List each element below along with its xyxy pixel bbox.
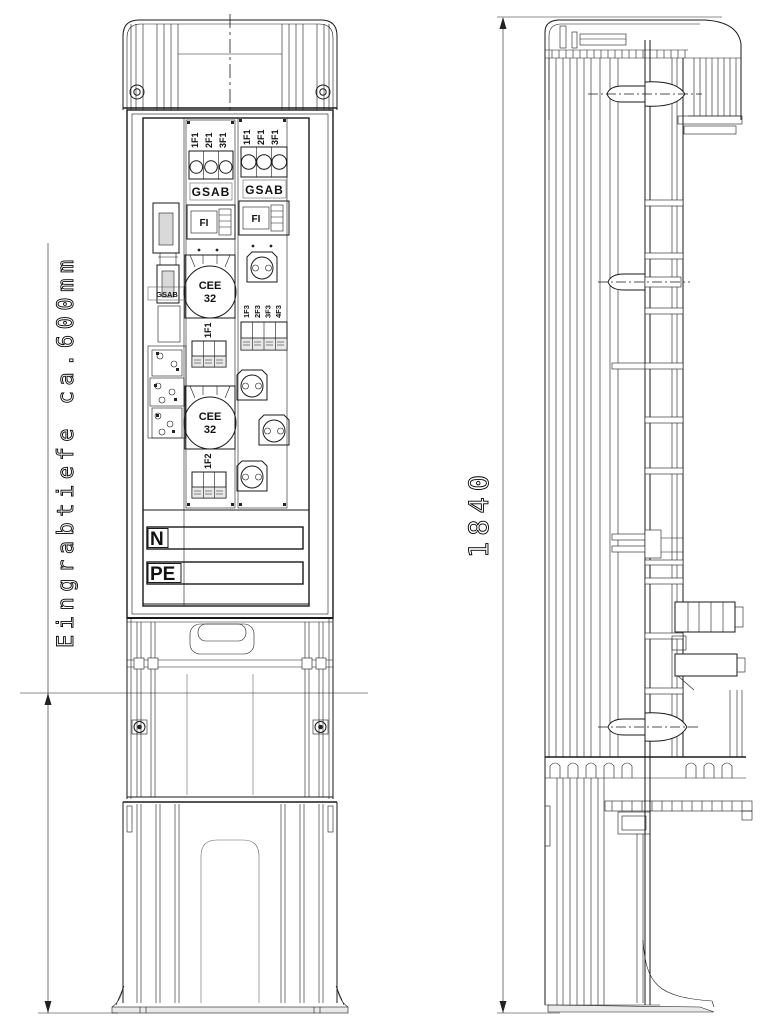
cee-rating: 32 [204, 293, 216, 305]
mcb-label: 1F3 [242, 305, 251, 318]
side-body [545, 40, 746, 1005]
brand-label: GSAB [192, 185, 231, 199]
base-feet [112, 985, 348, 1007]
door-handle-top[interactable] [588, 82, 702, 107]
front-view: GSAB 1F1 [112, 14, 348, 1013]
rcd-label: FI [252, 214, 261, 225]
brand-label: GSAB [245, 183, 284, 197]
side-cap [545, 20, 742, 134]
anchor-rod [637, 834, 643, 1003]
arrowhead-up [45, 693, 52, 705]
cap-ribs-left [131, 24, 178, 110]
height-label: 1840 [464, 469, 495, 558]
burial-depth-label: Eingrabtiefe ca.600mm [54, 254, 79, 648]
door-handle-bottom[interactable] [598, 713, 700, 741]
base-plate [112, 1007, 348, 1013]
technical-drawing-page: GSAB 1F1 [0, 0, 781, 1030]
brand-label-small: GSAB [156, 290, 178, 299]
cee-rating: 32 [204, 424, 216, 436]
side-flange [605, 801, 752, 820]
mcb-label: 2F3 [253, 305, 262, 318]
cap-screw-left [130, 85, 144, 99]
earth-label: PE [150, 564, 175, 585]
underground-section [112, 802, 348, 1013]
fuse-label: 3F1 [218, 132, 228, 148]
mcb-label: 4F3 [274, 305, 283, 318]
door-latch [612, 530, 683, 565]
fuse-label: 2F1 [204, 132, 214, 148]
circuit-label: 1F1 [203, 322, 213, 338]
side-underground [545, 757, 752, 1012]
power-pillar-drawing: GSAB 1F1 [0, 0, 781, 1030]
side-base-plate [548, 1005, 714, 1012]
cee-name: CEE [199, 280, 222, 292]
ground-anchor-outline [201, 840, 259, 1003]
body-screw-left [132, 720, 147, 734]
side-view [545, 20, 752, 1012]
lower-body [123, 618, 337, 802]
cee-name: CEE [199, 411, 222, 423]
fuse-label: 3F1 [270, 129, 280, 145]
neutral-label: N [150, 529, 164, 550]
fuse-label: 1F1 [190, 132, 200, 148]
mcb-label: 3F3 [264, 305, 273, 318]
arrowhead-down [500, 1001, 507, 1013]
door-handle-middle[interactable] [598, 274, 690, 290]
door-recess-handle[interactable] [190, 624, 254, 654]
circuit-label: 1F2 [203, 453, 213, 469]
arrowhead-down [45, 1001, 52, 1013]
cap-screw-right [316, 85, 330, 99]
side-foot-flare [643, 940, 714, 1007]
cap-ribs-right [282, 24, 329, 110]
arrowhead-up [500, 17, 507, 29]
rcd-label: FI [200, 218, 209, 229]
pillar-cap [123, 14, 337, 114]
body-screw-right [313, 720, 328, 734]
fuse-label: 1F1 [242, 129, 252, 145]
fuse-label: 2F1 [256, 129, 266, 145]
